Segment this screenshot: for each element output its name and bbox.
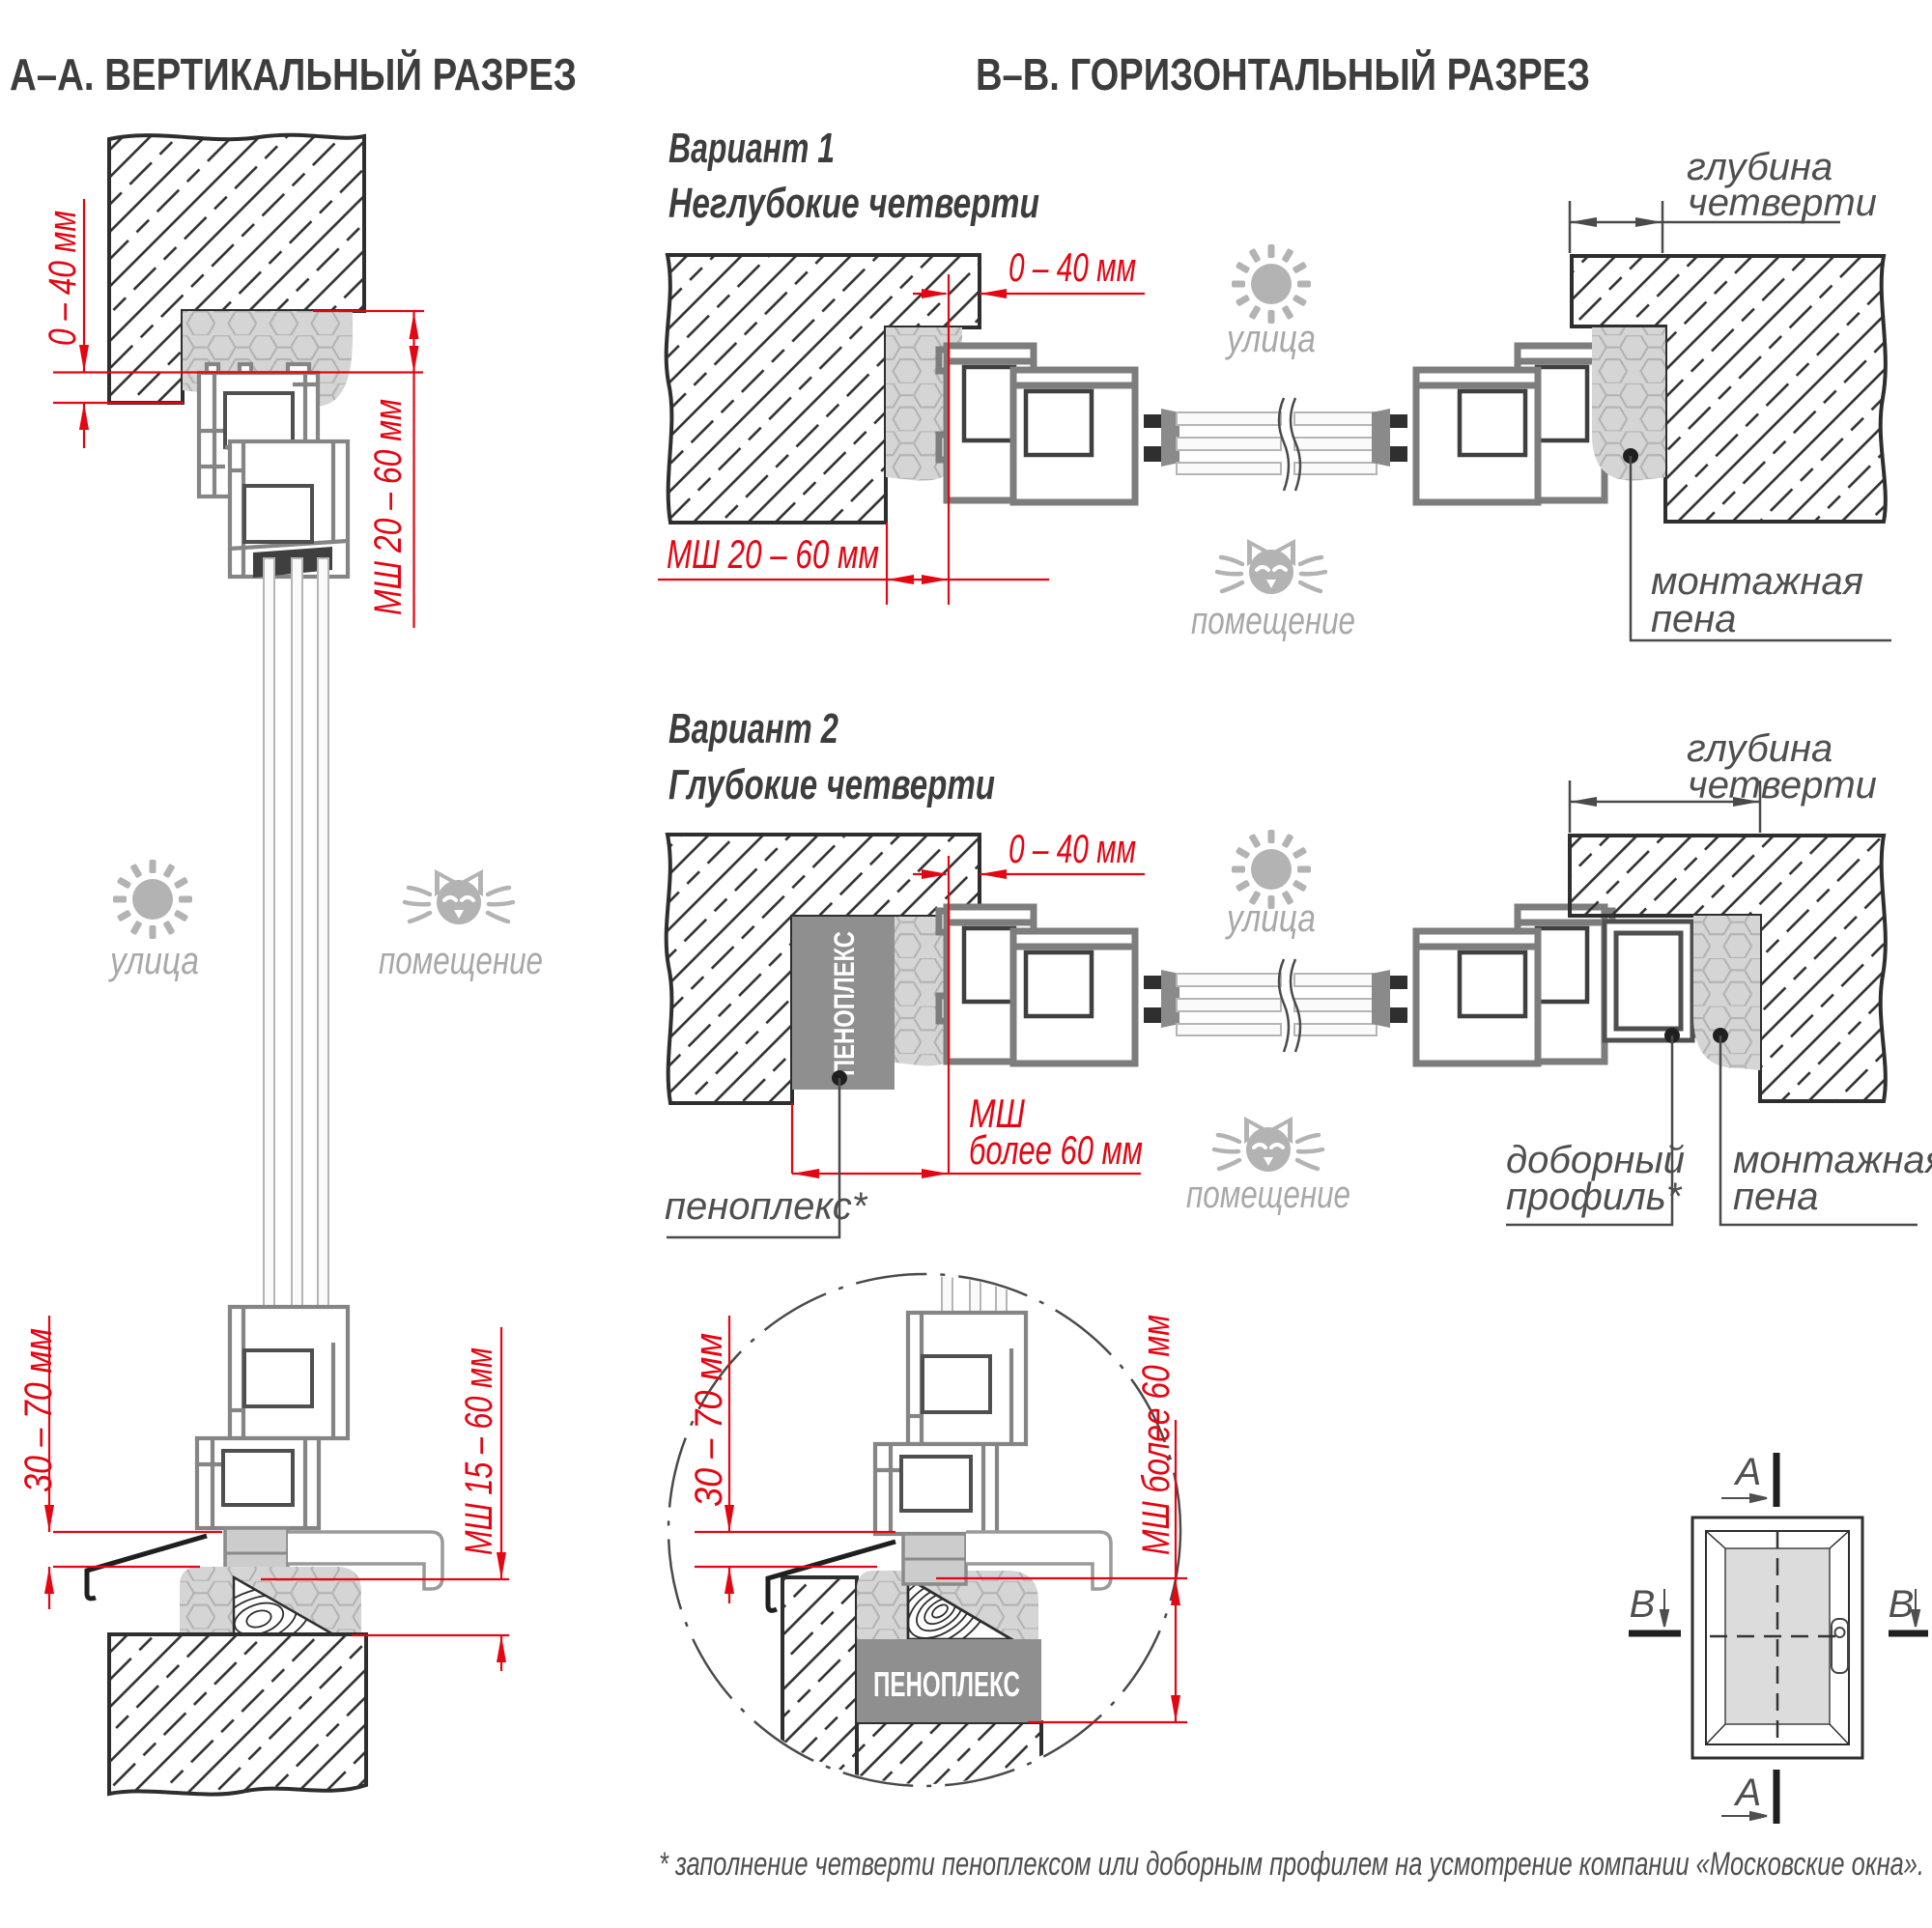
svg-text:четверти: четверти (1688, 182, 1877, 224)
svg-text:В: В (1630, 1583, 1656, 1626)
svg-text:* заполнение четверти пеноплек: * заполнение четверти пеноплексом или до… (659, 1846, 1924, 1883)
svg-text:более 60 мм: более 60 мм (969, 1127, 1143, 1173)
svg-text:помещение: помещение (1191, 600, 1355, 642)
svg-text:МШ более 60 мм: МШ более 60 мм (1135, 1315, 1178, 1555)
svg-text:Вариант 1: Вариант 1 (668, 125, 835, 172)
svg-text:МШ 20 – 60 мм: МШ 20 – 60 мм (367, 399, 410, 615)
svg-text:монтажная: монтажная (1651, 560, 1863, 603)
svg-text:А–А. ВЕРТИКАЛЬНЫЙ РАЗРЕЗ: А–А. ВЕРТИКАЛЬНЫЙ РАЗРЕЗ (10, 49, 577, 99)
svg-text:МШ 15 – 60 мм: МШ 15 – 60 мм (458, 1347, 500, 1555)
svg-text:0 – 40 мм: 0 – 40 мм (42, 211, 84, 346)
svg-text:ПЕНОПЛЕКС: ПЕНОПЛЕКС (829, 931, 861, 1076)
svg-text:Глубокие четверти: Глубокие четверти (668, 761, 995, 808)
svg-text:помещение: помещение (379, 940, 543, 982)
svg-text:30 – 70 мм: 30 – 70 мм (17, 1328, 60, 1492)
svg-text:улица: улица (107, 940, 199, 982)
svg-text:МШ 20 – 60 мм: МШ 20 – 60 мм (667, 531, 879, 577)
svg-text:Вариант 2: Вариант 2 (668, 705, 838, 752)
svg-text:пеноплекс*: пеноплекс* (665, 1185, 868, 1228)
svg-text:А: А (1734, 1772, 1762, 1814)
svg-text:четверти: четверти (1688, 764, 1877, 807)
svg-text:улица: улица (1224, 897, 1316, 940)
svg-text:помещение: помещение (1186, 1174, 1350, 1216)
svg-text:30 – 70 мм: 30 – 70 мм (688, 1333, 730, 1507)
svg-text:А: А (1734, 1451, 1762, 1493)
svg-text:В: В (1889, 1583, 1915, 1626)
svg-text:ПЕНОПЛЕКС: ПЕНОПЛЕКС (873, 1664, 1020, 1704)
svg-text:В–В. ГОРИЗОНТАЛЬНЫЙ РАЗРЕЗ: В–В. ГОРИЗОНТАЛЬНЫЙ РАЗРЕЗ (976, 49, 1590, 99)
svg-text:0 – 40 мм: 0 – 40 мм (1009, 826, 1136, 871)
svg-text:улица: улица (1224, 318, 1316, 360)
svg-text:пена: пена (1733, 1176, 1819, 1218)
svg-text:Неглубокие четверти: Неглубокие четверти (668, 180, 1039, 227)
svg-text:пена: пена (1651, 598, 1737, 640)
svg-text:0 – 40 мм: 0 – 40 мм (1009, 244, 1136, 290)
svg-text:профиль*: профиль* (1506, 1176, 1683, 1218)
